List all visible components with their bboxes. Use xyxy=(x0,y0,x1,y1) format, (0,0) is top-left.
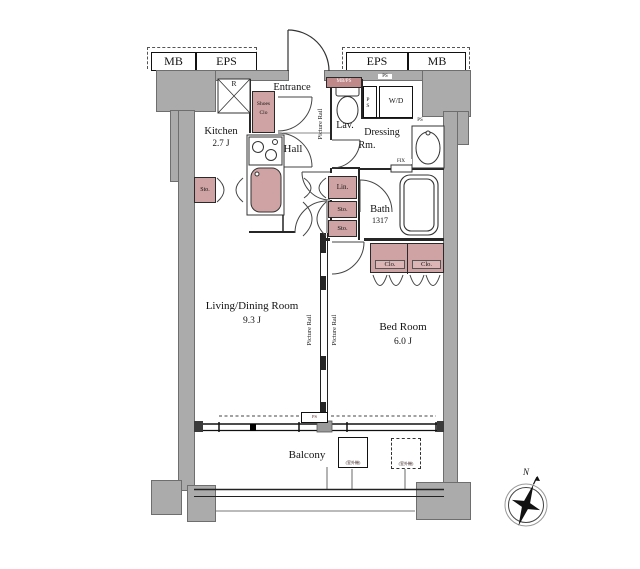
eps-box-right: EPS xyxy=(346,52,408,71)
meter-pipe-space-box: MB/PS xyxy=(326,77,362,88)
living-room-label: Living/Dining Room xyxy=(188,301,316,313)
dressing-label-1: Dressing xyxy=(355,128,409,139)
bath-label: Bath xyxy=(362,204,398,215)
pillar-top-left xyxy=(157,71,215,111)
compass-north-label: N xyxy=(518,468,534,478)
kitchen-size-label: 2.7 J xyxy=(193,139,249,149)
meter-box-left: MB xyxy=(151,52,196,71)
shoes-closet-box: Shoes Clo xyxy=(252,91,275,133)
compass-icon xyxy=(505,476,547,526)
bedroom-closet-row: Clo. Clo. xyxy=(370,243,444,273)
dressing-door xyxy=(302,172,330,200)
picture-rail-label-living: Picture Rail xyxy=(306,300,316,360)
bedroom-size-label: 6.0 J xyxy=(358,337,448,347)
bedroom-door xyxy=(332,242,364,274)
bathtub-icon xyxy=(400,175,438,235)
wall-bedroom-top-right xyxy=(364,238,444,241)
wall-protrusion-ps: PS xyxy=(301,412,328,423)
meter-pipe-space-label: MB/PS xyxy=(327,79,361,84)
eps-box-left: EPS xyxy=(196,52,257,71)
pipe-space-label-top: PS xyxy=(378,74,392,79)
partition-segment xyxy=(321,356,326,370)
storage-b-label: Sto. xyxy=(329,225,356,232)
refrigerator-label: R xyxy=(218,80,250,88)
hall-label: Hall xyxy=(276,144,310,156)
pillar-bottom-left-inner xyxy=(188,486,215,521)
wall-lav-bottom xyxy=(332,167,360,169)
ac-unit-1: (室外機) xyxy=(338,437,368,468)
kitchen-storage-box: Sto. xyxy=(194,177,216,203)
washer-dryer-box: W/D xyxy=(379,86,413,118)
bedroom-label: Bed Room xyxy=(358,322,448,334)
closet-bifold-doors xyxy=(373,275,440,286)
closet-left-label: Clo. xyxy=(375,260,405,269)
storage-a-label: Sto. xyxy=(329,206,356,213)
partition-segment xyxy=(321,276,326,290)
ac-unit-2-label: (室外機) xyxy=(392,462,420,466)
closet-right-label: Clo. xyxy=(412,260,441,269)
floor-plan: MB EPS EPS MB xyxy=(0,0,640,569)
hall-living-door xyxy=(295,201,327,233)
dressing-label-2: Rm. xyxy=(352,141,382,152)
picture-rail-label-entrance: Picture Rail xyxy=(317,94,327,154)
wall-bath-top xyxy=(358,168,444,170)
picture-rail-label-bedroom: Picture Rail xyxy=(331,300,341,360)
balcony-label: Balcony xyxy=(279,450,335,462)
meter-box-right: MB xyxy=(408,52,466,71)
linen-box: Lin. xyxy=(328,176,357,199)
wall-hall-bottom xyxy=(249,231,295,233)
pipe-space-label-basin: PS xyxy=(413,118,427,123)
washbasin-icon xyxy=(412,126,444,168)
pipe-space-column-label: PS xyxy=(364,91,376,115)
kitchen-sink-icon xyxy=(251,168,281,212)
washer-dryer-label: W/D xyxy=(380,97,412,105)
pillar-bottom-left-outer xyxy=(152,481,181,514)
wall-east xyxy=(444,112,457,488)
bath-size-label: 1317 xyxy=(362,217,398,226)
living-room-size-label: 9.3 J xyxy=(188,316,316,326)
linen-label: Lin. xyxy=(329,184,356,192)
wall-bath-left xyxy=(358,170,360,240)
pillar-top-right xyxy=(423,71,470,116)
shoes-closet-label-2: Clo xyxy=(253,111,274,117)
closet-cell-right: Clo. xyxy=(408,244,444,274)
entrance-door-arc xyxy=(288,30,329,71)
ac-unit-1-label: (室外機) xyxy=(339,461,367,465)
shoes-closet-doors xyxy=(278,97,312,167)
pipe-space-column: PS xyxy=(363,86,377,118)
storage-box-a: Sto. xyxy=(328,201,357,218)
shoes-closet-label-1: Shoes xyxy=(253,102,274,108)
closet-cell-left: Clo. xyxy=(371,244,408,274)
kitchen-label: Kitchen xyxy=(193,126,249,137)
partition-living-bedroom xyxy=(320,233,328,420)
ac-unit-2: (室外機) xyxy=(391,438,421,469)
kitchen-storage-bifold xyxy=(217,178,243,202)
partition-segment xyxy=(321,233,326,253)
balcony-edges xyxy=(194,467,444,511)
wall-ps-label: PS xyxy=(302,415,327,420)
toilet-icon xyxy=(336,85,359,124)
storage-box-b: Sto. xyxy=(328,220,357,237)
pillar-bottom-right xyxy=(417,483,470,519)
linen-doors xyxy=(303,178,326,236)
kitchen-storage-label: Sto. xyxy=(195,187,215,193)
fix-window-label: FIX xyxy=(390,159,412,164)
entrance-label: Entrance xyxy=(262,82,322,93)
